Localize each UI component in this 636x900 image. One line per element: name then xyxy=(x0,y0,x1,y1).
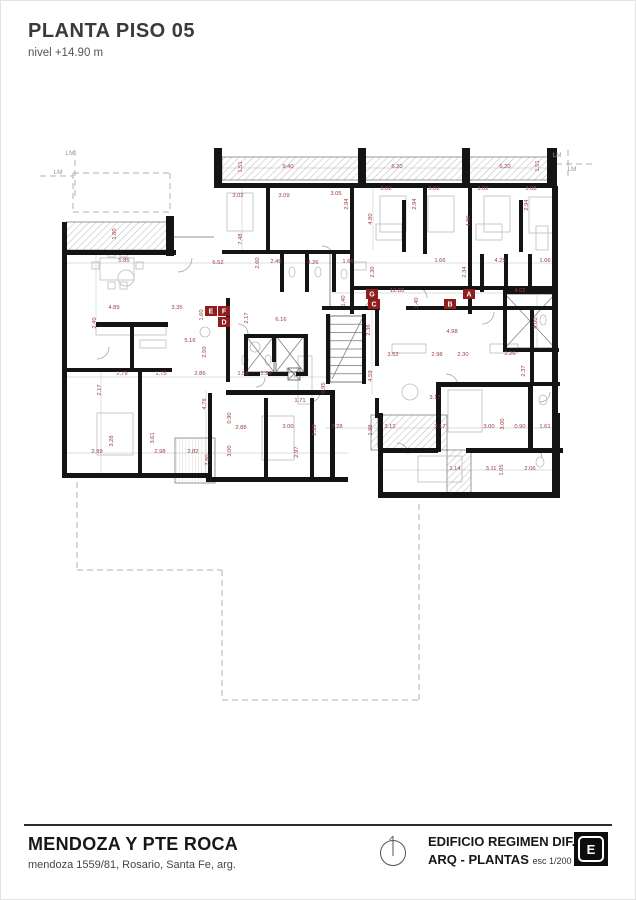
section-marker-D: D xyxy=(218,317,230,327)
sheet-name: ARQ - PLANTAS esc 1/200 xyxy=(428,852,575,867)
svg-text:1.66: 1.66 xyxy=(434,258,445,264)
svg-text:3.17: 3.17 xyxy=(429,395,440,401)
svg-text:4.80: 4.80 xyxy=(466,215,472,226)
svg-text:6.20: 6.20 xyxy=(499,164,510,170)
svg-text:1.98: 1.98 xyxy=(368,424,374,435)
svg-text:3.09: 3.09 xyxy=(278,193,289,199)
svg-text:3.08: 3.08 xyxy=(525,186,536,192)
studio-logo: E xyxy=(574,832,608,866)
section-marker-C: C xyxy=(368,299,380,309)
svg-text:1.80: 1.80 xyxy=(112,228,118,239)
svg-text:3.02: 3.02 xyxy=(477,186,488,192)
svg-text:2.17: 2.17 xyxy=(244,312,250,323)
svg-text:1.40: 1.40 xyxy=(414,297,420,308)
svg-text:6.20: 6.20 xyxy=(391,164,402,170)
svg-text:1.66: 1.66 xyxy=(539,258,550,264)
svg-text:4.78: 4.78 xyxy=(202,398,208,409)
svg-text:4.02: 4.02 xyxy=(514,288,525,294)
svg-text:2.98: 2.98 xyxy=(431,352,442,358)
svg-text:3.61: 3.61 xyxy=(150,432,156,443)
svg-text:2.79: 2.79 xyxy=(116,371,127,377)
svg-text:4.80: 4.80 xyxy=(368,213,374,224)
svg-text:A: A xyxy=(466,292,471,299)
svg-text:D: D xyxy=(221,320,226,327)
svg-text:3.00: 3.00 xyxy=(282,424,293,430)
svg-text:3.02: 3.02 xyxy=(232,193,243,199)
svg-text:1.61: 1.61 xyxy=(539,424,550,430)
svg-text:LM: LM xyxy=(567,166,576,173)
svg-text:5.16: 5.16 xyxy=(184,338,195,344)
svg-text:5.85: 5.85 xyxy=(118,258,129,264)
svg-text:2.99: 2.99 xyxy=(91,449,102,455)
svg-text:2.98: 2.98 xyxy=(154,449,165,455)
scale-label: esc 1/200 xyxy=(533,856,572,866)
project-address: mendoza 1559/81, Rosario, Santa Fe, arg. xyxy=(28,859,238,871)
svg-text:1.51: 1.51 xyxy=(238,161,244,172)
svg-text:1.66: 1.66 xyxy=(342,259,353,265)
svg-text:0.90: 0.90 xyxy=(227,412,233,423)
north-compass-icon xyxy=(376,834,410,868)
svg-text:1.14: 1.14 xyxy=(449,466,461,472)
svg-text:LM: LM xyxy=(53,169,62,176)
svg-text:4.26: 4.26 xyxy=(307,260,318,266)
svg-text:2.99: 2.99 xyxy=(312,424,318,435)
svg-text:0.90: 0.90 xyxy=(514,424,525,430)
svg-text:7.80: 7.80 xyxy=(205,454,211,465)
svg-text:1.51: 1.51 xyxy=(535,160,541,171)
studio-logo-letter: E xyxy=(578,836,604,862)
svg-text:2.50: 2.50 xyxy=(202,346,208,357)
project-name: MENDOZA Y PTE ROCA xyxy=(28,834,238,855)
svg-text:3.00: 3.00 xyxy=(500,418,506,429)
svg-text:3.11: 3.11 xyxy=(486,466,497,472)
svg-text:4.25: 4.25 xyxy=(494,258,505,264)
svg-text:2.17: 2.17 xyxy=(97,384,103,395)
svg-text:2.94: 2.94 xyxy=(412,198,418,210)
svg-text:3.00: 3.00 xyxy=(227,445,233,456)
svg-text:9.40: 9.40 xyxy=(282,164,293,170)
svg-text:3.00: 3.00 xyxy=(483,424,494,430)
svg-text:2.34: 2.34 xyxy=(462,266,468,278)
svg-text:3.17: 3.17 xyxy=(434,424,445,430)
section-marker-G: G xyxy=(366,289,378,299)
svg-text:12.83: 12.83 xyxy=(390,288,405,294)
svg-text:0.95: 0.95 xyxy=(321,382,327,393)
svg-text:2.30: 2.30 xyxy=(457,352,468,358)
svg-text:2.94: 2.94 xyxy=(344,198,350,210)
svg-text:4.00: 4.00 xyxy=(533,317,539,328)
svg-text:3.02: 3.02 xyxy=(380,186,391,192)
svg-text:3.52: 3.52 xyxy=(387,352,398,358)
svg-text:7.48: 7.48 xyxy=(238,233,244,244)
svg-text:E: E xyxy=(209,309,214,316)
svg-text:1.75: 1.75 xyxy=(155,371,166,377)
svg-text:6.16: 6.16 xyxy=(275,317,286,323)
svg-text:2.37: 2.37 xyxy=(521,365,527,376)
svg-text:G: G xyxy=(369,292,375,299)
svg-text:3.35: 3.35 xyxy=(171,305,182,311)
svg-text:2.82: 2.82 xyxy=(187,449,198,455)
section-marker-E: E xyxy=(205,306,217,316)
svg-text:3.05: 3.05 xyxy=(330,191,341,197)
svg-text:1.55: 1.55 xyxy=(237,371,248,377)
svg-text:1.94: 1.94 xyxy=(260,371,272,377)
svg-text:2.88: 2.88 xyxy=(235,425,246,431)
svg-text:1.05: 1.05 xyxy=(499,464,505,475)
svg-text:3.02: 3.02 xyxy=(428,186,439,192)
svg-text:F: F xyxy=(222,309,227,316)
svg-text:2.30: 2.30 xyxy=(370,266,376,277)
section-marker-B: B xyxy=(444,299,456,309)
svg-text:2.97: 2.97 xyxy=(294,446,300,457)
svg-text:4.89: 4.89 xyxy=(108,305,119,311)
svg-text:3.12: 3.12 xyxy=(384,424,395,430)
svg-text:LM: LM xyxy=(65,150,74,157)
svg-text:2.06: 2.06 xyxy=(524,466,535,472)
svg-text:B: B xyxy=(447,302,452,309)
svg-text:6.52: 6.52 xyxy=(212,260,223,266)
svg-text:2.86: 2.86 xyxy=(194,371,205,377)
svg-text:2.26: 2.26 xyxy=(504,351,515,357)
floor-plan-drawing: 1.519.406.206.201.513.023.093.052.943.02… xyxy=(0,0,636,820)
title-bar-footer: MENDOZA Y PTE ROCA mendoza 1559/81, Rosa… xyxy=(24,824,612,896)
svg-text:3.28: 3.28 xyxy=(331,424,342,430)
building-name: EDIFICIO REGIMEN DIF. xyxy=(428,834,575,849)
svg-text:3.28: 3.28 xyxy=(109,435,115,446)
svg-text:1.60: 1.60 xyxy=(199,309,205,320)
svg-text:2.49: 2.49 xyxy=(270,259,281,265)
svg-text:4.59: 4.59 xyxy=(368,370,374,381)
walls xyxy=(62,148,563,498)
svg-text:1.40: 1.40 xyxy=(341,295,347,306)
section-marker-F: F xyxy=(218,306,230,316)
svg-text:2.60: 2.60 xyxy=(255,257,261,268)
svg-text:LM: LM xyxy=(552,152,561,159)
stair xyxy=(330,316,364,382)
svg-text:2.94: 2.94 xyxy=(524,199,530,211)
drawing-sheet: { "title": {"heading": "PLANTA PISO 05",… xyxy=(0,0,636,900)
svg-text:2.40: 2.40 xyxy=(92,317,98,328)
svg-text:1.71: 1.71 xyxy=(294,398,305,404)
svg-text:2.36: 2.36 xyxy=(366,324,372,335)
svg-text:4.98: 4.98 xyxy=(446,329,457,335)
svg-text:C: C xyxy=(371,302,376,309)
section-marker-A: A xyxy=(463,289,475,299)
